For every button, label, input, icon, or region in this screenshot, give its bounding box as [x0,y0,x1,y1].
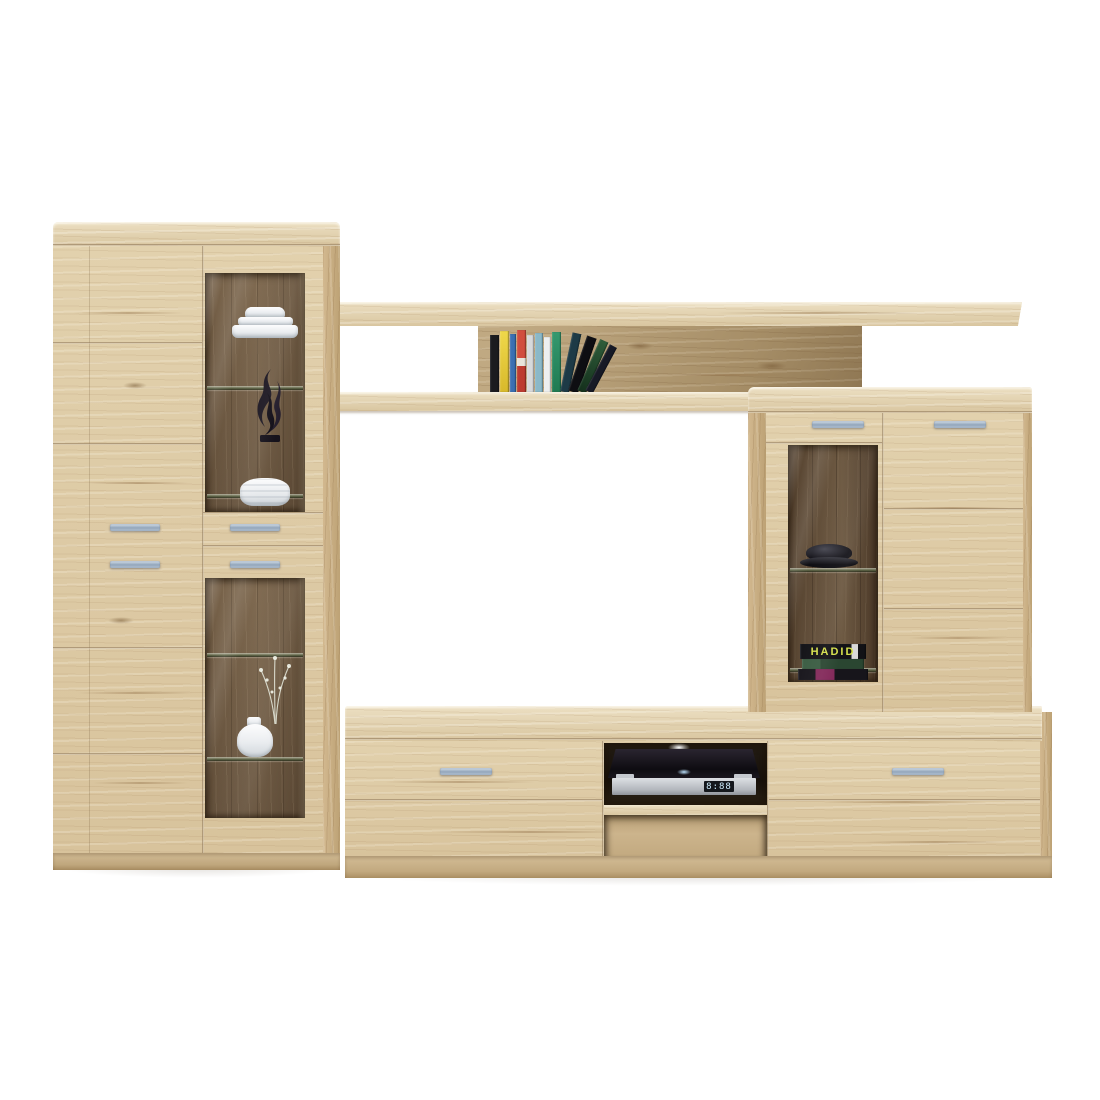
wood-grain [908,637,1008,639]
media-compartment-lower [604,815,767,862]
tv-stand: 8:88 [345,706,1052,878]
tv-drawer-left-groove [345,799,602,801]
bridge-top-board [337,302,1022,326]
left-cabinet-side-panel [323,246,340,853]
product-photo-stage: 8:88 [0,0,1100,1100]
wood-grain [435,831,625,833]
wood-grain [717,312,917,314]
right-display-cabinet: HADID [748,387,1032,712]
right-cabinet-top-cap [748,387,1032,413]
book-spine [517,330,526,392]
right-cabinet-side-right [1023,413,1032,712]
wood-knot [757,362,787,370]
right-drawer-handle [812,421,864,428]
left-door-groove [53,443,202,445]
tv-drawer-right-groove [769,799,1040,801]
left-door-groove [53,342,202,344]
tv-stand-top-groove [345,738,1042,740]
book-spine [527,335,534,392]
book-spine [510,334,516,392]
left-cabinet-top-cap [53,222,340,246]
wood-grain [667,374,787,376]
upper-glass-pane [205,273,305,512]
left-cabinet-stile-line [89,246,90,853]
right-cabinet-seam [882,413,884,712]
bridge-book-row [490,328,620,392]
left-door-groove [53,647,202,649]
right-glass-box: HADID [788,445,878,682]
wood-grain [93,782,188,784]
glass-door-handle [230,561,280,568]
wood-grain [385,781,535,783]
middle-drawer-groove [203,512,323,514]
left-display-cabinet [53,222,340,870]
wood-knot [627,342,653,350]
left-door-handle [110,524,160,531]
bridge-lower-board [337,392,750,411]
book-spine [535,333,543,392]
book-spine [552,332,561,392]
lower-glass-box [205,578,305,818]
book-spine [544,337,551,392]
wood-knot [123,382,147,389]
tv-drawer-left-handle [440,768,492,775]
middle-drawer-groove [203,545,323,547]
upper-glass-box [205,273,305,512]
lower-glass-pane [205,578,305,818]
book-spine [500,331,509,392]
right-drawer-groove [766,442,882,444]
right-cabinet-side-left [748,413,766,712]
wood-grain [865,841,1005,843]
left-door-handle [110,561,160,568]
media-player-display: 8:88 [704,781,734,792]
tv-stand-base [345,856,1052,878]
wood-knot [108,617,134,624]
left-cabinet-column-seam [202,246,204,853]
right-door-handle [934,421,986,428]
wood-grain [825,801,985,803]
right-door-groove [884,508,1023,510]
middle-drawer-handle [230,524,280,531]
media-player: 8:88 [608,749,760,797]
tv-drawer-right-handle [892,768,944,775]
right-glass-pane [788,445,878,682]
book-spine [490,335,499,392]
left-cabinet-base [53,853,340,870]
right-door-groove [884,608,1023,610]
media-compartment-shelf [604,805,767,815]
wood-grain [88,482,188,484]
left-door-groove [53,753,202,755]
media-player-glow [677,769,691,775]
wood-grain [78,692,193,694]
media-player-front [612,778,756,795]
